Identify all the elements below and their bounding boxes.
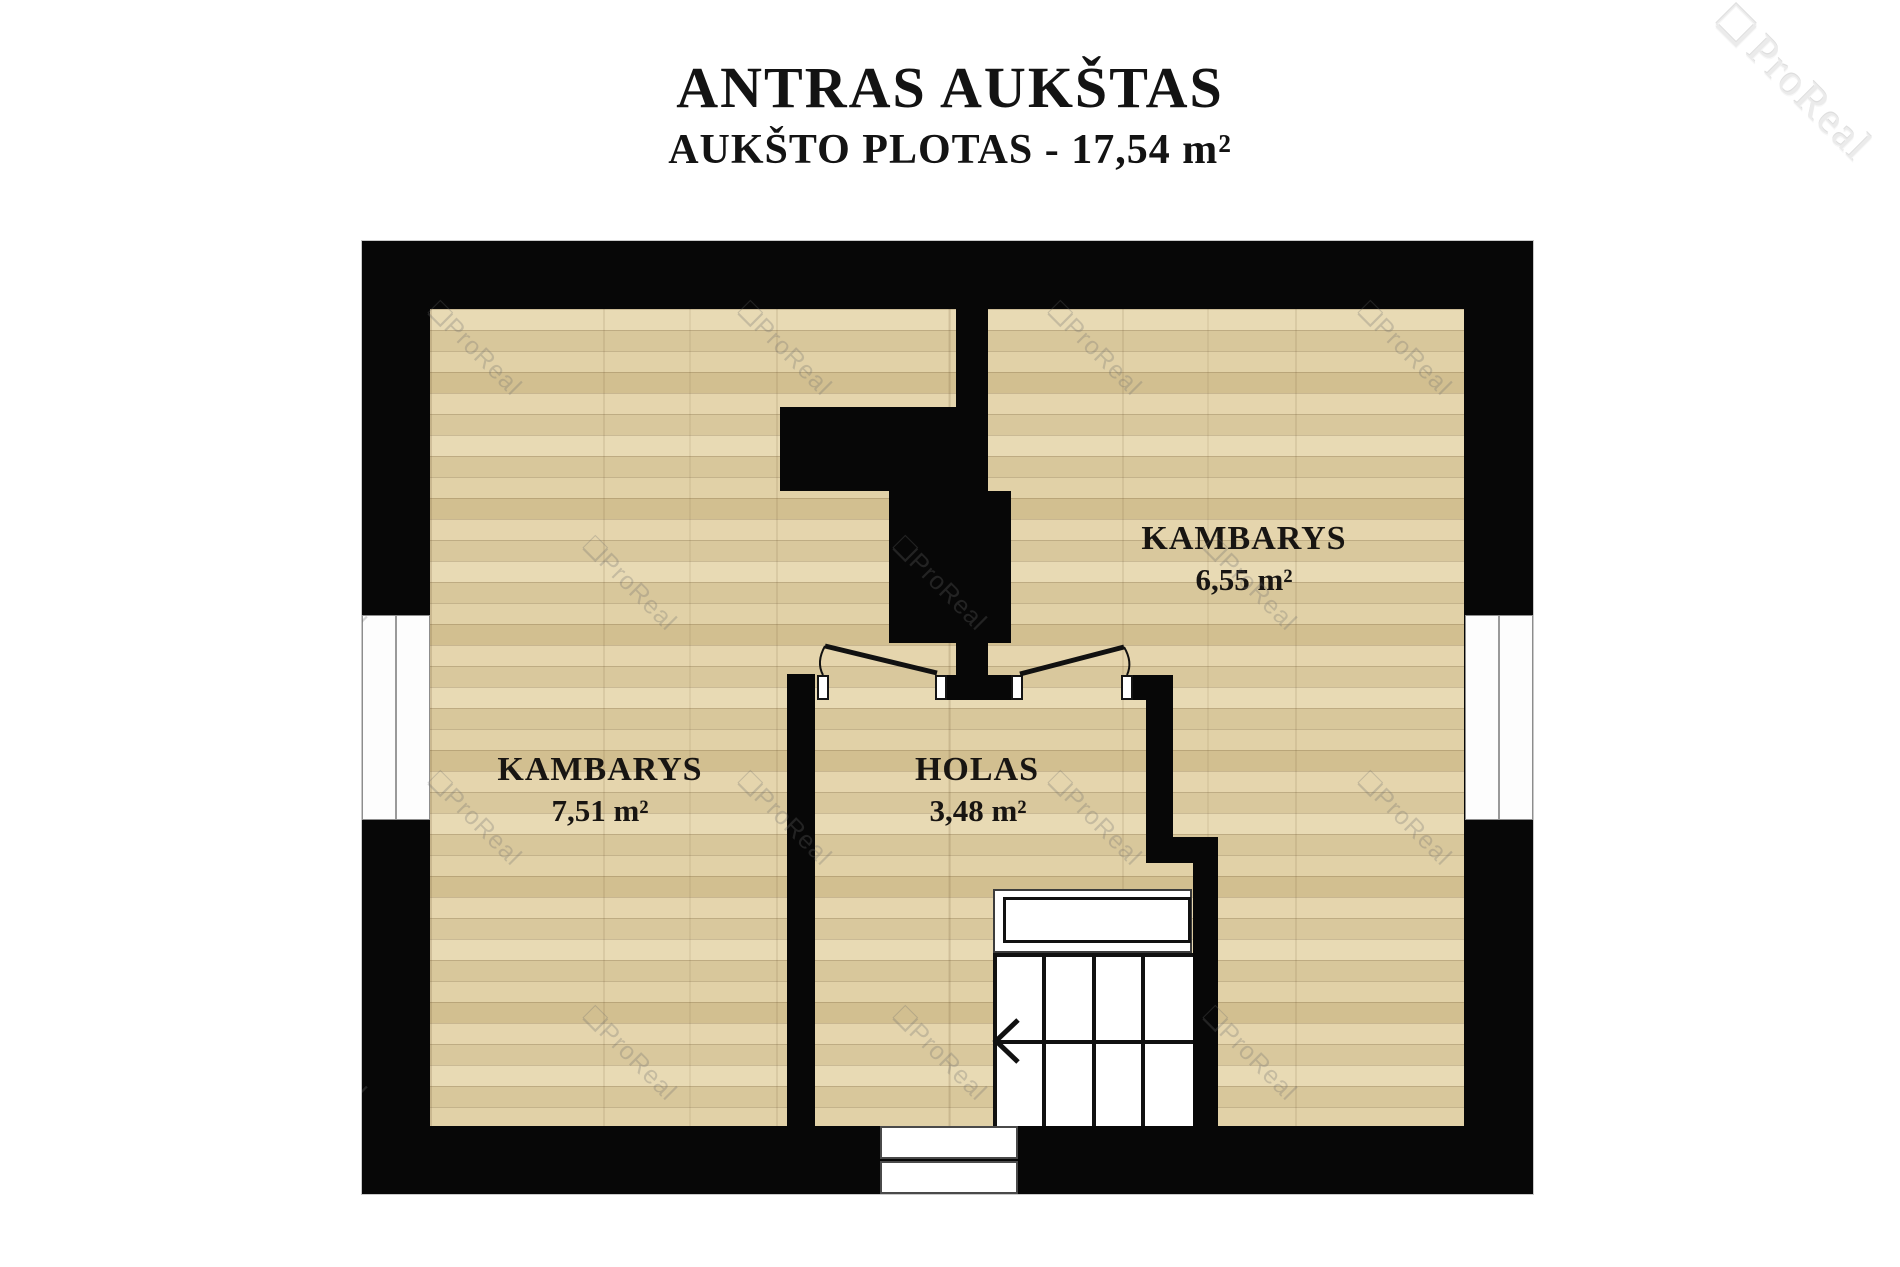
floorplan-page: ANTRAS AUKŠTAS AUKŠTO PLOTAS - 17,54 m² … [0, 0, 1900, 1267]
door-leaf-left [820, 646, 937, 675]
page-title: ANTRAS AUKŠTAS [0, 54, 1900, 121]
door-leaf-right [1020, 647, 1129, 675]
room-label-kambarys-left: KAMBARYS [497, 751, 702, 789]
stair-direction-arrow [996, 1020, 1018, 1062]
room-label-kambarys-right: KAMBARYS [1141, 520, 1346, 558]
room-area-kambarys-left: 7,51 m² [551, 793, 648, 829]
room-label-holas: HOLAS [915, 751, 1039, 789]
page-subtitle: AUKŠTO PLOTAS - 17,54 m² [0, 126, 1900, 174]
room-area-kambarys-right: 6,55 m² [1195, 562, 1292, 598]
door-and-arrow-symbols [362, 241, 1533, 1194]
floorplan: KAMBARYS 7,51 m² KAMBARYS 6,55 m² HOLAS … [362, 241, 1533, 1194]
room-area-holas: 3,48 m² [929, 793, 1026, 829]
